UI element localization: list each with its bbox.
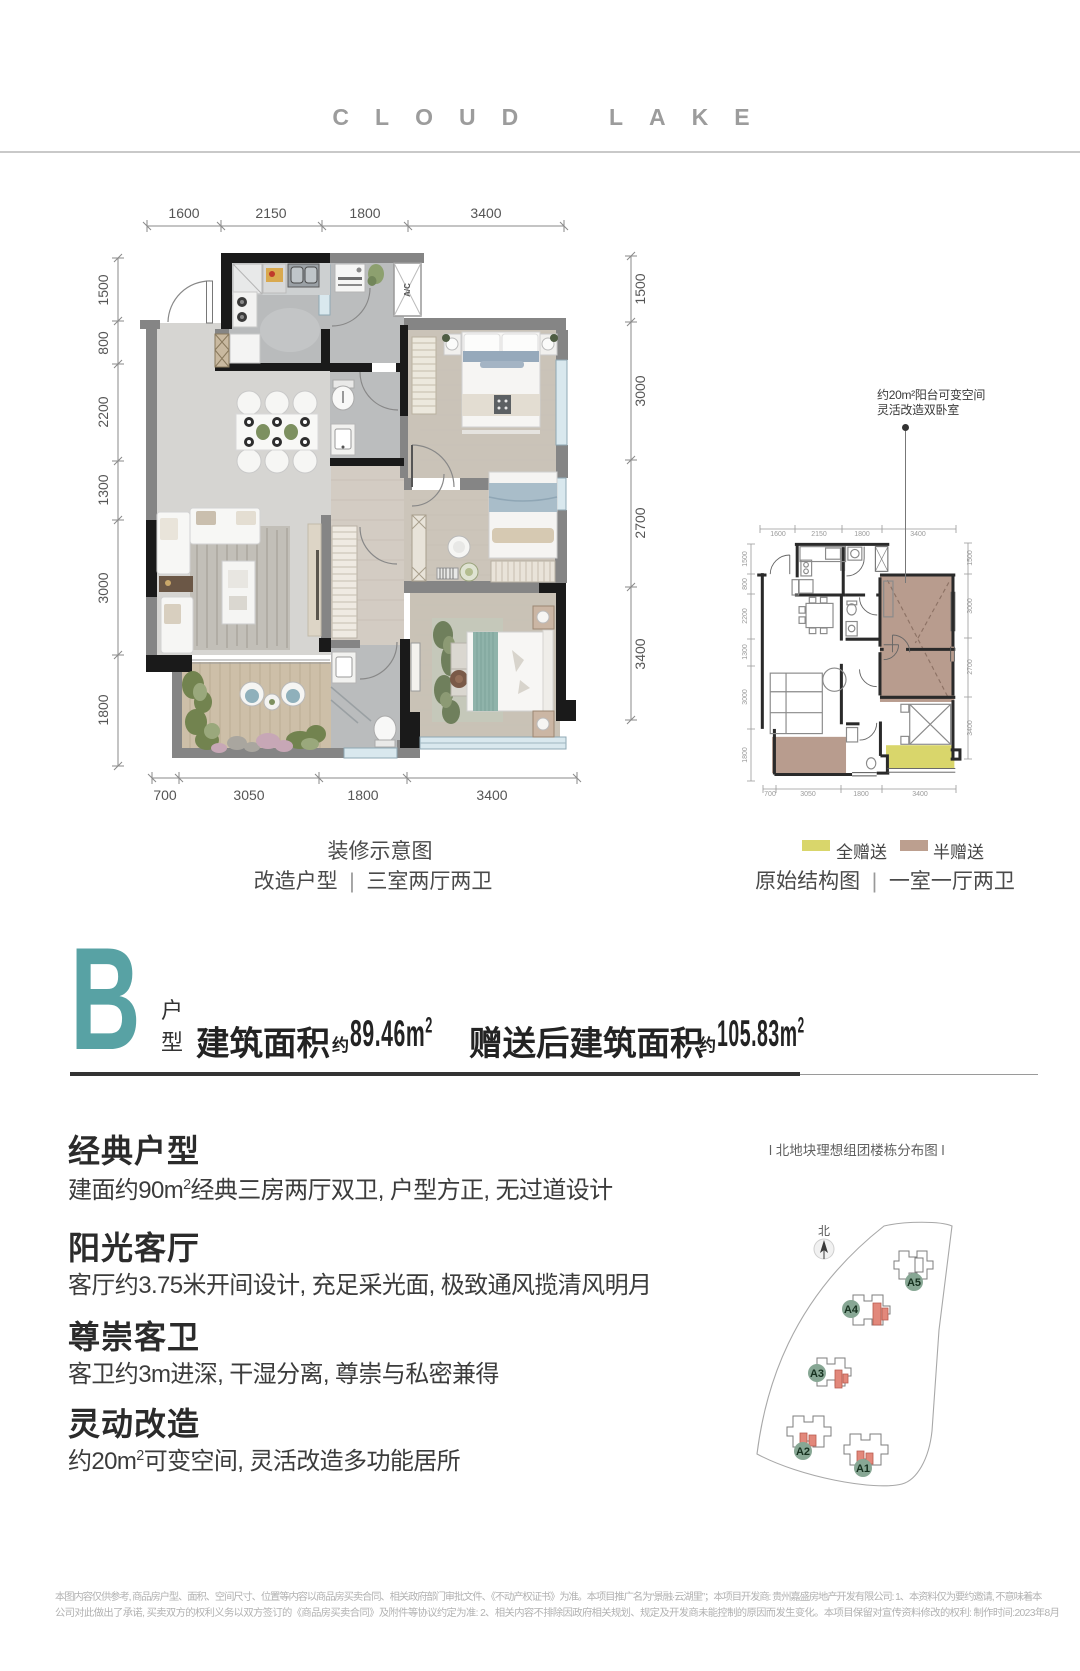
svg-text:700: 700 — [153, 787, 177, 803]
svg-text:1800: 1800 — [853, 791, 869, 798]
svg-text:2700: 2700 — [632, 507, 648, 538]
svg-text:3000: 3000 — [95, 572, 111, 603]
svg-text:3400: 3400 — [470, 205, 501, 221]
svg-text:A4: A4 — [844, 1304, 859, 1316]
svg-text:3000: 3000 — [742, 689, 749, 705]
svg-text:800: 800 — [95, 331, 111, 355]
svg-text:A/C: A/C — [403, 283, 412, 297]
svg-text:北: 北 — [818, 1224, 830, 1238]
svg-text:1800: 1800 — [95, 694, 111, 725]
svg-text:2200: 2200 — [95, 396, 111, 427]
svg-text:A3: A3 — [810, 1368, 824, 1380]
svg-text:1800: 1800 — [742, 747, 749, 763]
svg-text:3000: 3000 — [632, 375, 648, 406]
svg-text:1300: 1300 — [742, 644, 749, 660]
svg-text:A5: A5 — [907, 1277, 921, 1289]
svg-text:2150: 2150 — [811, 531, 827, 538]
svg-text:2200: 2200 — [742, 608, 749, 624]
svg-text:3050: 3050 — [800, 791, 816, 798]
svg-text:1300: 1300 — [95, 474, 111, 505]
svg-text:800: 800 — [742, 578, 749, 590]
svg-text:1500: 1500 — [632, 273, 648, 304]
svg-text:1600: 1600 — [770, 531, 786, 538]
svg-text:1800: 1800 — [854, 531, 870, 538]
svg-text:700: 700 — [764, 791, 776, 798]
svg-text:A1: A1 — [856, 1463, 870, 1475]
svg-text:1500: 1500 — [95, 274, 111, 305]
svg-text:A2: A2 — [796, 1446, 810, 1458]
svg-text:1800: 1800 — [347, 787, 378, 803]
svg-text:3400: 3400 — [476, 787, 507, 803]
svg-text:2150: 2150 — [255, 205, 286, 221]
svg-text:1500: 1500 — [742, 551, 749, 567]
svg-text:1600: 1600 — [168, 205, 199, 221]
svg-text:1800: 1800 — [349, 205, 380, 221]
svg-text:3400: 3400 — [912, 791, 928, 798]
svg-text:3400: 3400 — [632, 638, 648, 669]
svg-text:3400: 3400 — [910, 531, 926, 538]
svg-text:3050: 3050 — [233, 787, 264, 803]
